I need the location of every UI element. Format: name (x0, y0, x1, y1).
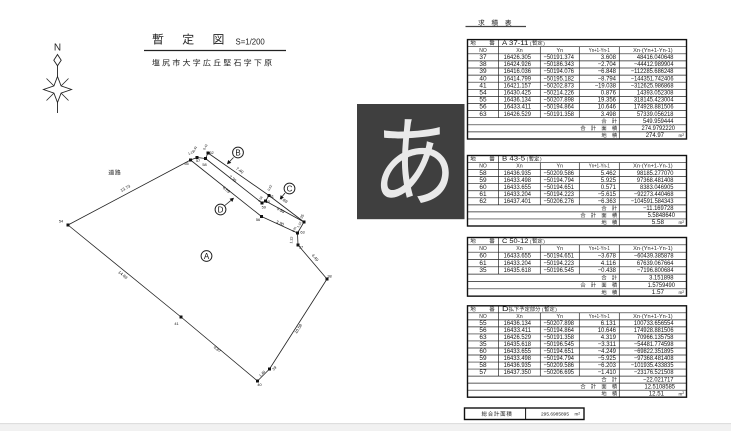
svg-text:55: 55 (479, 320, 487, 327)
svg-text:16436.935: 16436.935 (504, 362, 532, 369)
svg-text:16424.926: 16424.926 (504, 61, 532, 68)
svg-text:−50194.223: −50194.223 (544, 260, 575, 267)
svg-text:174928.881506: 174928.881506 (634, 327, 674, 334)
svg-text:−8.794: −8.794 (598, 75, 617, 82)
svg-text:12.51: 12.51 (649, 390, 665, 397)
svg-text:−50206.276: −50206.276 (544, 198, 575, 205)
svg-text:−50194.864: −50194.864 (544, 104, 575, 111)
svg-text:−50191.358: −50191.358 (544, 334, 575, 341)
svg-text:3.498: 3.498 (601, 111, 617, 118)
svg-text:16436.134: 16436.134 (504, 320, 532, 327)
svg-text:−5.615: −5.615 (598, 191, 617, 198)
svg-text:−50195.182: −50195.182 (544, 75, 575, 82)
svg-text:5.58: 5.58 (652, 219, 665, 226)
svg-text:38: 38 (327, 274, 331, 279)
svg-text:70966.135758: 70966.135758 (637, 334, 674, 341)
svg-text:295.6985895: 295.6985895 (541, 412, 569, 418)
svg-text:−50209.586: −50209.586 (544, 170, 575, 177)
svg-text:−50207.898: −50207.898 (544, 97, 575, 104)
svg-text:35: 35 (479, 341, 487, 348)
svg-text:−50194.651: −50194.651 (544, 184, 575, 191)
svg-text:D: D (218, 205, 224, 214)
svg-text:−4.249: −4.249 (598, 348, 617, 355)
svg-text:41: 41 (174, 321, 178, 326)
svg-text:−11.169728: −11.169728 (643, 205, 674, 212)
svg-text:16433.411: 16433.411 (504, 327, 532, 334)
svg-text:A 37-11: A 37-11 (502, 40, 529, 47)
svg-text:−144351.742406: −144351.742406 (631, 75, 674, 82)
svg-text:−50209.586: −50209.586 (544, 362, 575, 369)
svg-text:Xn: Xn (516, 246, 523, 252)
svg-text:Xn·(Yn+1-Yn-1): Xn·(Yn+1-Yn-1) (633, 246, 673, 252)
svg-text:−3.311: −3.311 (598, 341, 617, 348)
svg-text:2: 2 (682, 391, 684, 395)
svg-text:16430.425: 16430.425 (504, 90, 532, 97)
svg-text:−101935.433835: −101935.433835 (631, 362, 674, 369)
svg-text:−92273.440468: −92273.440468 (634, 191, 674, 198)
svg-text:1.5759490: 1.5759490 (648, 282, 676, 289)
svg-text:56: 56 (479, 327, 487, 334)
svg-text:12.5108585: 12.5108585 (645, 383, 676, 390)
svg-text:58: 58 (202, 162, 206, 167)
svg-text:A: A (204, 252, 210, 261)
svg-text:16437.350: 16437.350 (504, 369, 532, 376)
svg-text:2: 2 (682, 220, 684, 224)
svg-text:63: 63 (300, 230, 304, 235)
svg-text:0.571: 0.571 (601, 184, 617, 191)
svg-text:59: 59 (479, 355, 487, 362)
svg-text:97368.481408: 97368.481408 (637, 177, 674, 184)
svg-text:−23176.521508: −23176.521508 (634, 369, 674, 376)
svg-text:D: D (502, 306, 509, 313)
svg-text:16435.618: 16435.618 (504, 341, 532, 348)
svg-text:98185.277070: 98185.277070 (637, 170, 674, 177)
svg-text:5.462: 5.462 (601, 170, 617, 177)
svg-text:48416.040648: 48416.040648 (637, 54, 674, 61)
svg-text:37: 37 (479, 54, 487, 61)
svg-text:55: 55 (479, 97, 487, 104)
svg-text:−50194.651: −50194.651 (544, 348, 575, 355)
svg-text:57: 57 (196, 158, 200, 163)
svg-text:−50214.226: −50214.226 (544, 90, 575, 97)
svg-text:16433.204: 16433.204 (504, 191, 532, 198)
svg-text:−2.704: −2.704 (598, 61, 617, 68)
svg-text:−50194.076: −50194.076 (544, 68, 575, 75)
svg-text:8383.046905: 8383.046905 (640, 184, 674, 191)
svg-text:C 50-12: C 50-12 (502, 238, 529, 245)
svg-text:16426.529: 16426.529 (504, 334, 532, 341)
svg-text:−19.038: −19.038 (595, 82, 617, 89)
svg-text:N: N (54, 43, 61, 54)
svg-text:4.116: 4.116 (601, 260, 617, 267)
svg-text:14393.052308: 14393.052308 (637, 90, 674, 97)
svg-text:1.32: 1.32 (289, 236, 294, 243)
svg-text:−50194.223: −50194.223 (544, 191, 575, 198)
svg-text:−112285.686248: −112285.686248 (631, 68, 674, 75)
svg-text:0.876: 0.876 (601, 90, 617, 97)
svg-text:10.646: 10.646 (598, 104, 617, 111)
svg-text:Yn+1-Yn-1: Yn+1-Yn-1 (589, 246, 610, 252)
svg-text:−6.203: −6.203 (598, 362, 617, 369)
svg-text:60: 60 (479, 348, 487, 355)
svg-text:549.959444: 549.959444 (643, 118, 674, 125)
svg-text:40: 40 (479, 75, 487, 82)
svg-text:16426.305: 16426.305 (504, 54, 532, 61)
svg-text:54: 54 (479, 90, 487, 97)
svg-text:16426.529: 16426.529 (504, 111, 532, 118)
svg-text:63: 63 (479, 111, 487, 118)
svg-text:16433.498: 16433.498 (504, 177, 532, 184)
svg-text:S=1/200: S=1/200 (236, 37, 266, 46)
svg-text:16433.655: 16433.655 (504, 184, 532, 191)
svg-text:−104591.584343: −104591.584343 (631, 198, 674, 205)
svg-text:10.646: 10.646 (598, 327, 617, 334)
svg-text:1.57: 1.57 (652, 289, 665, 296)
svg-text:318145.423004: 318145.423004 (634, 97, 674, 104)
svg-text:−50206.695: −50206.695 (544, 369, 575, 376)
svg-text:6.131: 6.131 (601, 320, 617, 327)
svg-text:67639.067664: 67639.067664 (637, 260, 674, 267)
svg-text:56: 56 (256, 217, 260, 222)
svg-text:60: 60 (479, 184, 487, 191)
svg-text:−7196.800684: −7196.800684 (637, 267, 674, 274)
svg-text:174928.881506: 174928.881506 (634, 104, 674, 111)
svg-text:−50186.343: −50186.343 (544, 61, 575, 68)
svg-text:3.151898: 3.151898 (649, 274, 674, 281)
svg-text:62: 62 (209, 150, 213, 155)
svg-text:−6.848: −6.848 (598, 68, 617, 75)
svg-text:−50194.864: −50194.864 (544, 327, 575, 334)
svg-text:NO: NO (479, 246, 487, 252)
svg-text:16433.498: 16433.498 (504, 355, 532, 362)
svg-text:16416.036: 16416.036 (504, 68, 532, 75)
svg-text:16436.935: 16436.935 (504, 170, 532, 177)
svg-text:59: 59 (262, 204, 266, 209)
svg-text:−50191.374: −50191.374 (544, 54, 575, 61)
svg-text:16421.157: 16421.157 (504, 82, 532, 89)
svg-text:−3.678: −3.678 (598, 252, 617, 259)
svg-text:60: 60 (479, 252, 487, 259)
svg-text:−50194.794: −50194.794 (544, 177, 575, 184)
svg-text:38: 38 (479, 61, 487, 68)
svg-text:NO: NO (479, 48, 487, 54)
svg-text:16433.655: 16433.655 (504, 252, 532, 259)
svg-text:−69822.351895: −69822.351895 (634, 348, 674, 355)
svg-text:16436.134: 16436.134 (504, 97, 532, 104)
svg-text:61: 61 (479, 191, 487, 198)
svg-text:−60439.385878: −60439.385878 (634, 252, 674, 259)
svg-text:63: 63 (479, 334, 487, 341)
svg-text:2: 2 (682, 133, 684, 137)
svg-text:56: 56 (479, 104, 487, 111)
svg-text:16414.799: 16414.799 (504, 75, 532, 82)
svg-text:B 43-5: B 43-5 (502, 156, 526, 163)
svg-text:−1.410: −1.410 (598, 369, 617, 376)
svg-text:58: 58 (479, 170, 487, 177)
svg-text:39: 39 (479, 68, 487, 75)
svg-text:−50191.358: −50191.358 (544, 111, 575, 118)
svg-text:−54481.774598: −54481.774598 (634, 341, 674, 348)
svg-text:−312625.986868: −312625.986868 (631, 82, 674, 89)
svg-text:C: C (287, 184, 293, 193)
svg-text:16437.401: 16437.401 (504, 198, 532, 205)
svg-text:61: 61 (270, 193, 274, 198)
svg-text:274.9792220: 274.9792220 (642, 125, 676, 132)
svg-text:61: 61 (479, 260, 487, 267)
svg-text:16435.618: 16435.618 (504, 267, 532, 274)
svg-text:−50194.794: −50194.794 (544, 355, 575, 362)
svg-text:−50194.651: −50194.651 (544, 252, 575, 259)
svg-text:2: 2 (682, 290, 684, 294)
svg-text:−97368.481408: −97368.481408 (634, 355, 674, 362)
svg-text:59: 59 (479, 177, 487, 184)
svg-text:55: 55 (184, 161, 188, 166)
svg-text:41: 41 (479, 82, 487, 89)
svg-text:5.925: 5.925 (601, 177, 617, 184)
svg-text:−44412.989904: −44412.989904 (634, 61, 674, 68)
svg-text:16433.655: 16433.655 (504, 348, 532, 355)
svg-text:35: 35 (479, 267, 487, 274)
svg-text:16433.204: 16433.204 (504, 260, 532, 267)
svg-text:37: 37 (299, 244, 303, 249)
svg-text:16433.411: 16433.411 (504, 104, 532, 111)
svg-text:Yn+1-Yn-1: Yn+1-Yn-1 (589, 48, 610, 54)
svg-text:−22.021717: −22.021717 (643, 376, 674, 383)
svg-text:62: 62 (479, 198, 487, 205)
svg-text:−5.925: −5.925 (598, 355, 617, 362)
svg-text:−50196.545: −50196.545 (544, 267, 575, 274)
svg-text:−0.438: −0.438 (598, 267, 617, 274)
svg-text:Xn: Xn (516, 48, 523, 54)
svg-text:Yn: Yn (557, 48, 564, 54)
svg-text:4.319: 4.319 (601, 334, 617, 341)
svg-text:3.608: 3.608 (601, 54, 617, 61)
svg-text:100733.656554: 100733.656554 (634, 320, 674, 327)
svg-text:−50202.873: −50202.873 (544, 82, 575, 89)
svg-text:Yn: Yn (557, 246, 564, 252)
svg-text:−50196.545: −50196.545 (544, 341, 575, 348)
svg-text:Xn·(Yn+1-Yn-1): Xn·(Yn+1-Yn-1) (633, 48, 673, 54)
svg-text:58: 58 (479, 362, 487, 369)
svg-text:57339.056218: 57339.056218 (637, 111, 674, 118)
svg-text:B: B (235, 148, 240, 157)
svg-text:5.5848640: 5.5848640 (648, 212, 676, 219)
svg-text:−50207.898: −50207.898 (544, 320, 575, 327)
svg-text:274.97: 274.97 (646, 132, 665, 139)
svg-text:−6.363: −6.363 (598, 198, 617, 205)
svg-text:57: 57 (479, 369, 487, 376)
svg-text:2: 2 (578, 412, 580, 416)
svg-text:19.356: 19.356 (598, 97, 617, 104)
